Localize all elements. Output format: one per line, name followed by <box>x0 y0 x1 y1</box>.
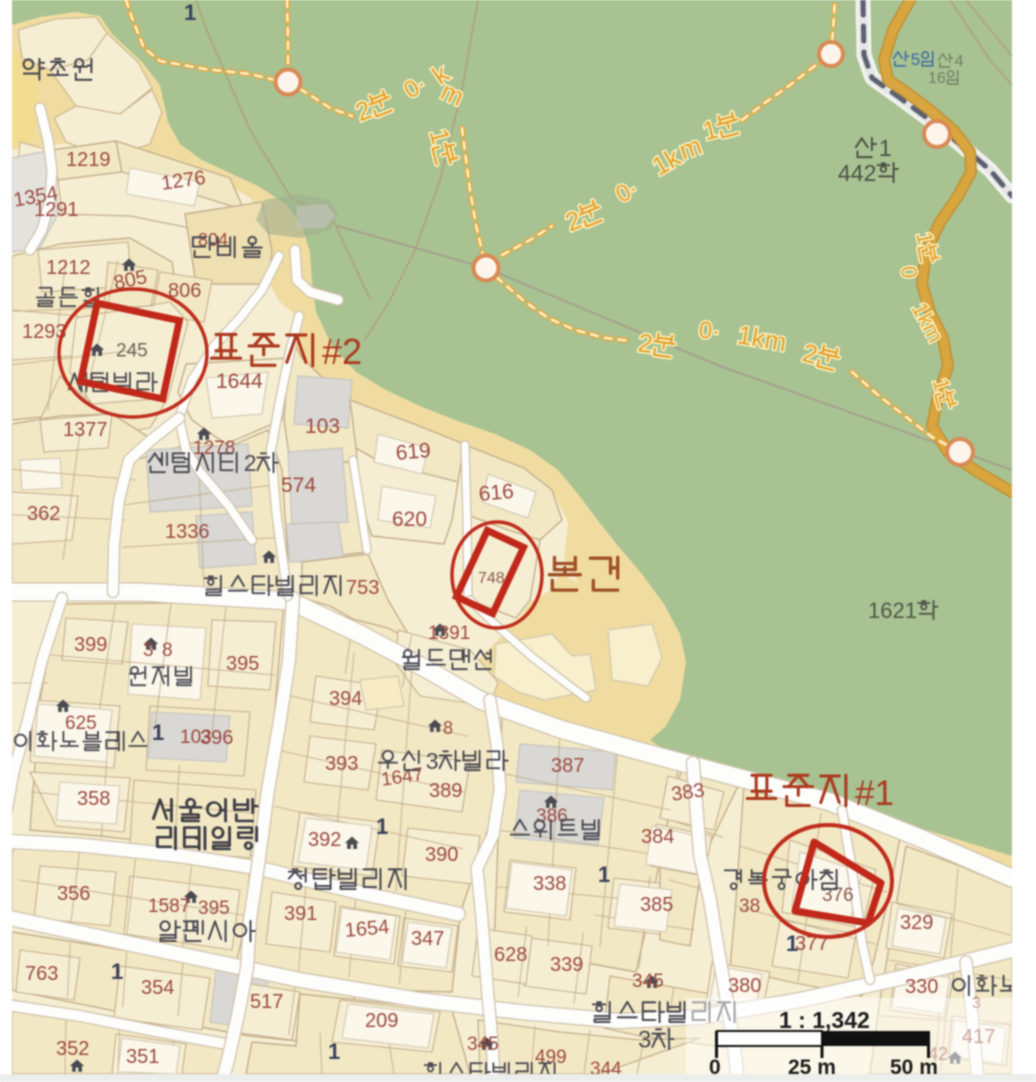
svg-text:2: 2 <box>244 450 257 476</box>
svg-text:399: 399 <box>74 634 107 656</box>
svg-text:616: 616 <box>478 480 515 506</box>
svg-text:351: 351 <box>126 1046 159 1068</box>
svg-text:392: 392 <box>308 829 341 851</box>
svg-text:16: 16 <box>928 70 946 87</box>
svg-text:1391: 1391 <box>428 623 470 644</box>
svg-text:619: 619 <box>395 439 432 465</box>
svg-text:1377: 1377 <box>63 419 108 441</box>
svg-text:3: 3 <box>426 748 439 774</box>
svg-text:330: 330 <box>905 976 938 998</box>
svg-text:8: 8 <box>162 640 173 661</box>
svg-text:245: 245 <box>116 341 148 362</box>
svg-text:347: 347 <box>411 928 444 950</box>
svg-text:620: 620 <box>392 508 427 531</box>
svg-text:8: 8 <box>443 718 453 738</box>
svg-text:1212: 1212 <box>46 257 91 279</box>
svg-text:384: 384 <box>641 826 674 848</box>
svg-text:103: 103 <box>305 415 340 438</box>
svg-text:1: 1 <box>328 1039 340 1064</box>
svg-text:329: 329 <box>900 912 933 934</box>
svg-text:1: 1 <box>184 0 196 25</box>
svg-text:385: 385 <box>640 894 673 916</box>
svg-text:358: 358 <box>77 788 110 810</box>
svg-text:387: 387 <box>551 755 584 777</box>
svg-text:#2: #2 <box>322 331 362 372</box>
svg-text:3: 3 <box>143 640 154 661</box>
svg-text:339: 339 <box>550 954 583 976</box>
svg-text:763: 763 <box>25 963 58 985</box>
svg-text:442: 442 <box>838 160 876 186</box>
svg-text:394: 394 <box>329 688 362 710</box>
svg-text:393: 393 <box>325 753 358 775</box>
svg-text:0: 0 <box>896 265 922 279</box>
svg-text:345: 345 <box>467 1034 499 1055</box>
svg-text:1587: 1587 <box>148 896 190 917</box>
svg-text:1654: 1654 <box>344 916 390 942</box>
svg-text:5: 5 <box>911 50 920 69</box>
svg-text:#1: #1 <box>855 774 894 813</box>
svg-text:356: 356 <box>57 883 90 905</box>
svg-text:0·: 0· <box>698 317 722 346</box>
svg-text:753: 753 <box>346 577 379 599</box>
svg-text:209: 209 <box>365 1010 398 1032</box>
svg-text:1291: 1291 <box>34 199 79 221</box>
svg-text:1: 1 <box>152 720 164 745</box>
svg-text:1: 1 <box>376 814 388 839</box>
svg-text:380: 380 <box>728 975 761 997</box>
svg-text:338: 338 <box>533 873 566 895</box>
svg-text:499: 499 <box>535 1047 567 1068</box>
svg-text:574: 574 <box>281 474 316 497</box>
svg-text:1: 1 <box>111 959 123 984</box>
svg-text:1336: 1336 <box>165 521 210 543</box>
svg-text:1 : 1,342: 1 : 1,342 <box>779 1007 870 1033</box>
svg-text:352: 352 <box>56 1038 89 1060</box>
svg-text:4: 4 <box>955 53 964 70</box>
svg-text:1621: 1621 <box>868 598 917 623</box>
svg-text:1: 1 <box>598 862 610 887</box>
svg-text:362: 362 <box>27 503 60 525</box>
svg-text:383: 383 <box>670 779 706 805</box>
svg-text:354: 354 <box>141 977 174 999</box>
svg-text:1219: 1219 <box>66 149 111 171</box>
svg-text:391: 391 <box>284 903 317 925</box>
svg-text:103: 103 <box>180 727 212 748</box>
svg-text:386: 386 <box>536 806 568 827</box>
svg-text:628: 628 <box>494 944 527 966</box>
svg-text:517: 517 <box>250 991 283 1013</box>
svg-text:1: 1 <box>786 931 798 956</box>
svg-text:395: 395 <box>226 653 259 675</box>
svg-text:345: 345 <box>632 971 664 992</box>
svg-text:389: 389 <box>429 780 462 802</box>
svg-text:1: 1 <box>879 135 892 161</box>
svg-text:625: 625 <box>65 713 97 734</box>
svg-text:1644: 1644 <box>216 370 263 393</box>
svg-text:3: 3 <box>638 1027 651 1054</box>
svg-text:395: 395 <box>198 898 230 919</box>
svg-text:390: 390 <box>425 844 458 866</box>
svg-text:38: 38 <box>739 896 760 917</box>
svg-text:748: 748 <box>478 570 505 587</box>
svg-text:1278: 1278 <box>193 438 235 459</box>
